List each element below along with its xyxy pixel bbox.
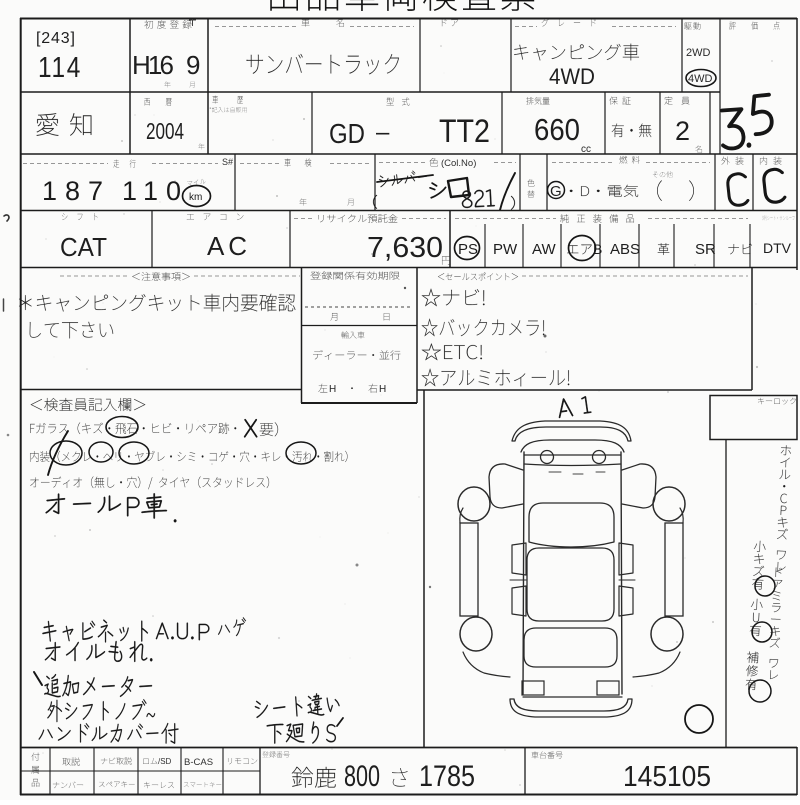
- svg-text:PS: PS: [458, 241, 478, 258]
- svg-text:GD: GD: [329, 118, 365, 149]
- svg-text:SR: SR: [695, 241, 716, 258]
- svg-text:[243]: [243]: [36, 30, 75, 47]
- svg-text:TT2: TT2: [439, 113, 490, 149]
- svg-text:(Col.No): (Col.No): [441, 158, 476, 169]
- svg-text:1785: 1785: [419, 760, 475, 793]
- svg-text:ABS: ABS: [610, 241, 640, 258]
- svg-text:9: 9: [186, 50, 200, 80]
- svg-text:H: H: [329, 384, 336, 395]
- svg-text:–: –: [376, 119, 390, 146]
- svg-text:S#: S#: [222, 157, 233, 167]
- svg-text:2WD: 2WD: [686, 47, 711, 59]
- svg-text:H16: H16: [132, 50, 174, 80]
- svg-text:660: 660: [534, 112, 580, 147]
- svg-text:4WD: 4WD: [549, 64, 595, 89]
- svg-text:4WD: 4WD: [688, 73, 713, 85]
- svg-text:145105: 145105: [623, 761, 711, 793]
- svg-text:7,630: 7,630: [367, 232, 443, 264]
- svg-text:2: 2: [675, 116, 690, 146]
- svg-text:PW: PW: [493, 241, 518, 258]
- svg-text:DTV: DTV: [763, 240, 792, 256]
- svg-text:114: 114: [38, 52, 82, 84]
- svg-text:AW: AW: [532, 241, 556, 258]
- svg-text:CAT: CAT: [60, 232, 107, 262]
- svg-text:km: km: [189, 192, 202, 203]
- svg-text:800: 800: [344, 760, 380, 793]
- svg-text:/SD: /SD: [158, 757, 172, 766]
- svg-text:B-CAS: B-CAS: [184, 757, 213, 768]
- svg-text:H: H: [379, 384, 386, 395]
- svg-text:2004: 2004: [146, 118, 184, 144]
